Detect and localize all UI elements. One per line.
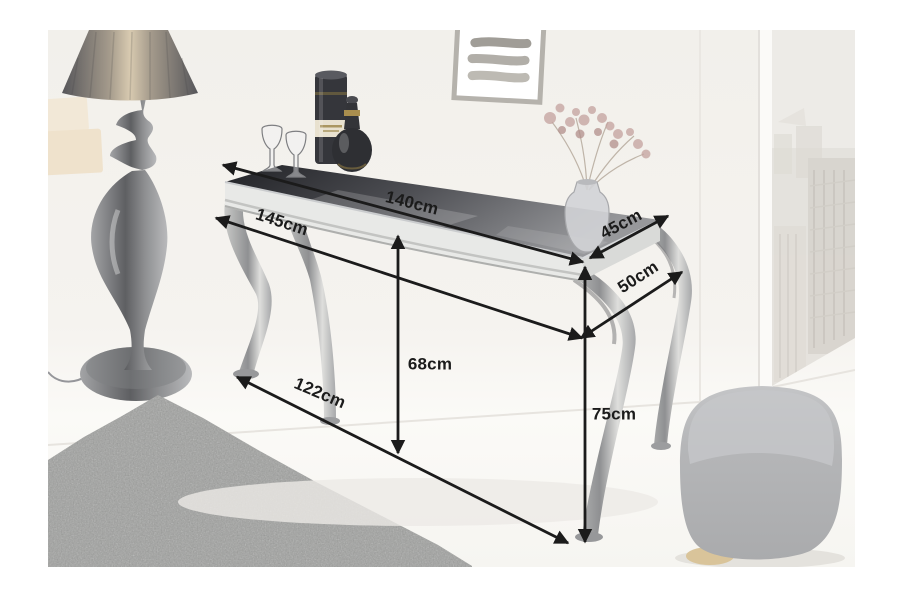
room-photo: 140cm 145cm 45cm 50cm 68cm 122cm 75cm <box>48 30 855 567</box>
product-image-canvas: 140cm 145cm 45cm 50cm 68cm 122cm 75cm <box>0 0 900 600</box>
overall-height-label: 75cm <box>592 406 636 423</box>
clearance-height-label: 68cm <box>408 356 452 373</box>
dimension-overlay <box>48 30 855 567</box>
floor-span-arrow <box>237 377 568 543</box>
